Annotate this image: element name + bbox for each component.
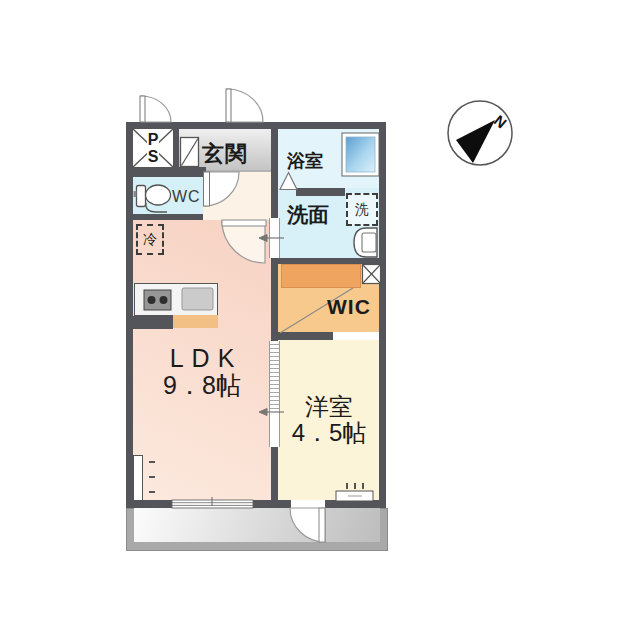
ldk-door-arc [222,220,266,263]
compass-icon: N [448,101,512,165]
wash-basin-icon [354,228,377,257]
western-room-label: 洋室 4．5帖 [279,394,379,446]
toilet-label: WC [172,188,201,206]
bath-window [342,133,379,176]
shoe-cabinet-icon [181,138,199,167]
ldk-side-window [134,456,156,501]
bathroom-label: 浴室 [287,149,323,173]
toilet-door-arc [204,172,240,206]
entrance-door-arc [226,89,263,122]
ldk-label: LDK 9．8帖 [137,345,267,399]
ps-door-arc [140,96,171,122]
floor-plan: 冷 洗 [0,0,640,640]
sink-icon [182,288,213,310]
washroom-label: 洗面 [287,201,329,229]
wic-label: WIC [327,295,371,319]
plan-overlay: N [0,0,640,640]
ps-label: P S [133,131,173,165]
entrance-label: 玄関 [202,139,248,169]
ldk-window [172,497,253,508]
toilet-icon [134,185,171,212]
duct-box-icon [363,265,381,284]
bath-folding-door [280,173,297,190]
stove-icon [144,290,171,310]
balcony-door-arc [290,500,325,542]
western-room-window [336,483,373,501]
